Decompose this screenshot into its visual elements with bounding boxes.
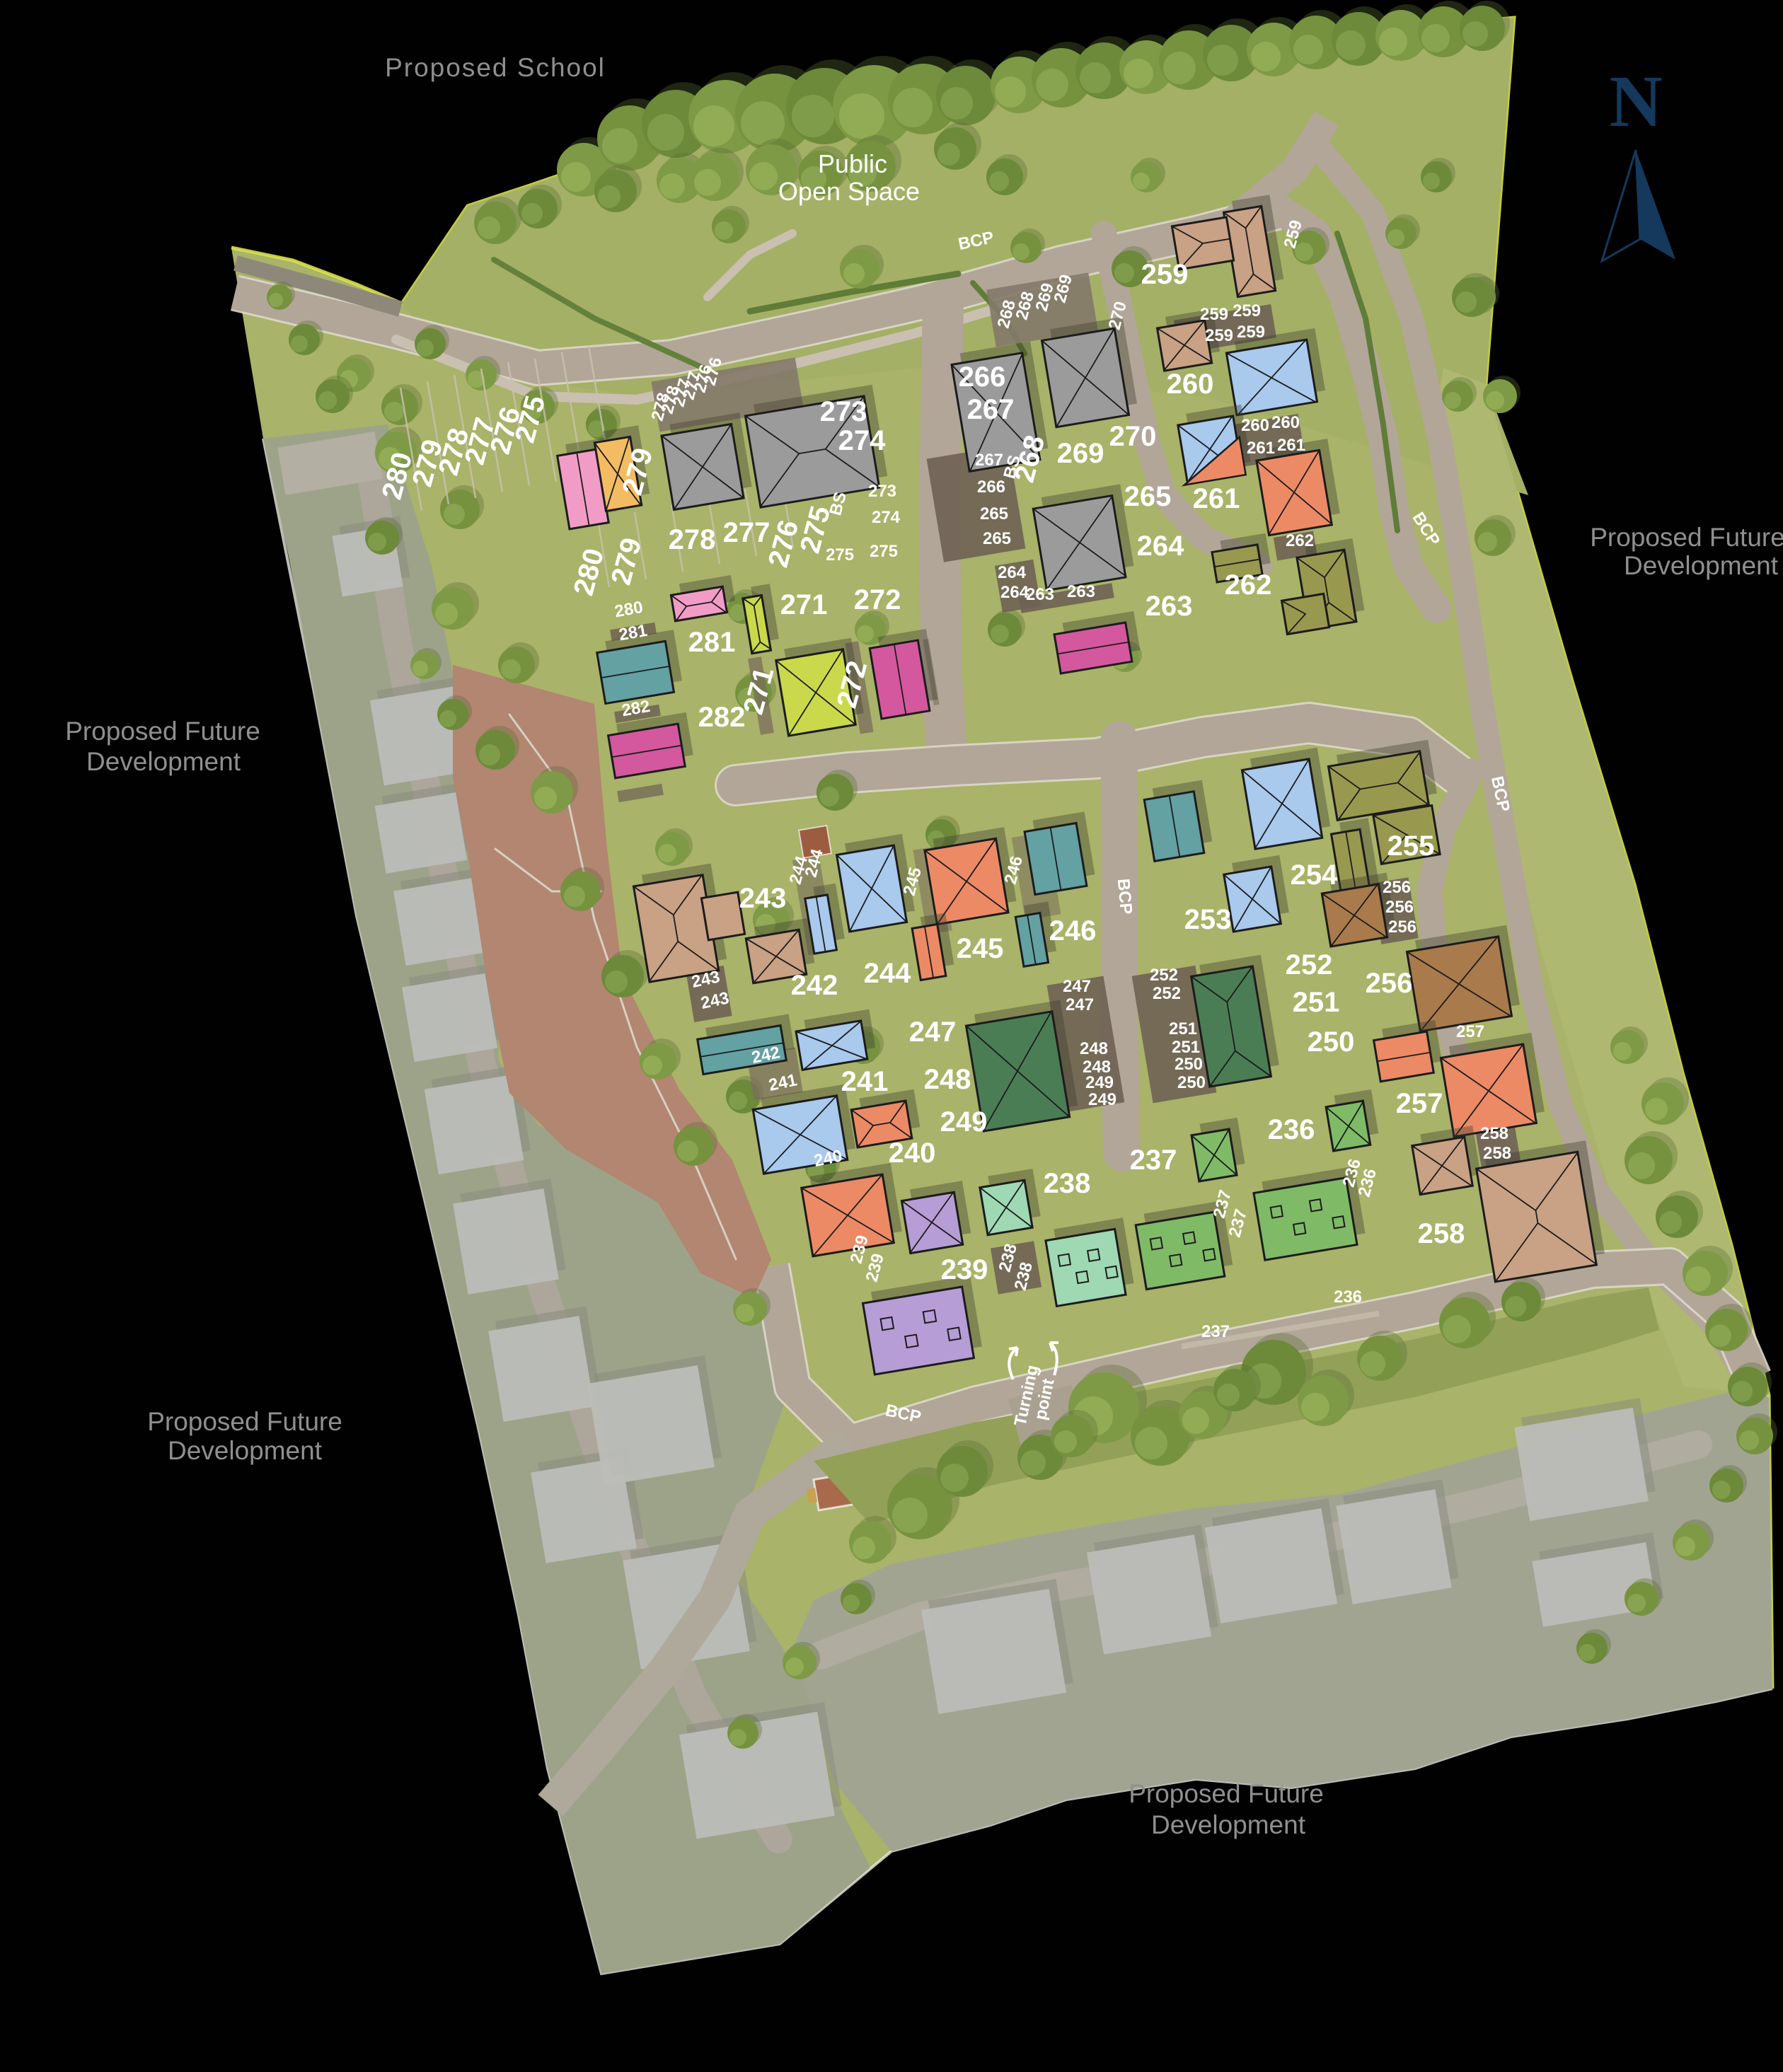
svg-text:248: 248 xyxy=(924,1064,971,1095)
svg-text:258: 258 xyxy=(1483,1144,1511,1163)
svg-text:261: 261 xyxy=(1193,483,1240,514)
svg-text:Proposed Future: Proposed Future xyxy=(1129,1779,1324,1808)
svg-text:259: 259 xyxy=(1233,301,1261,320)
svg-text:239: 239 xyxy=(941,1254,988,1285)
svg-text:255: 255 xyxy=(1387,830,1435,862)
svg-text:265: 265 xyxy=(980,504,1008,523)
svg-text:259: 259 xyxy=(1237,323,1265,342)
svg-text:256: 256 xyxy=(1383,878,1411,897)
svg-text:258: 258 xyxy=(1418,1218,1465,1249)
svg-text:267: 267 xyxy=(967,394,1015,425)
svg-text:236: 236 xyxy=(1334,1287,1362,1307)
svg-text:253: 253 xyxy=(1184,904,1232,935)
svg-text:237: 237 xyxy=(1201,1322,1230,1341)
svg-text:267: 267 xyxy=(975,451,1003,470)
svg-text:275: 275 xyxy=(826,545,854,565)
svg-text:256: 256 xyxy=(1366,968,1413,999)
svg-text:244: 244 xyxy=(864,958,911,989)
svg-text:238: 238 xyxy=(1044,1168,1091,1199)
svg-text:247: 247 xyxy=(1063,977,1091,996)
svg-text:250: 250 xyxy=(1175,1055,1203,1074)
svg-text:257: 257 xyxy=(1396,1088,1443,1119)
svg-text:256: 256 xyxy=(1388,918,1416,937)
svg-text:250: 250 xyxy=(1177,1073,1206,1092)
svg-text:269: 269 xyxy=(1057,438,1104,469)
svg-text:Proposed Future: Proposed Future xyxy=(1590,523,1783,552)
svg-text:263: 263 xyxy=(1146,591,1193,622)
svg-text:277: 277 xyxy=(723,517,771,548)
svg-text:260: 260 xyxy=(1241,416,1269,435)
svg-text:236: 236 xyxy=(1268,1114,1315,1145)
svg-text:264: 264 xyxy=(1137,531,1184,562)
svg-text:264: 264 xyxy=(998,563,1027,582)
svg-text:261: 261 xyxy=(1277,436,1305,455)
svg-text:266: 266 xyxy=(977,478,1005,497)
svg-text:251: 251 xyxy=(1293,987,1340,1018)
svg-text:Development: Development xyxy=(1624,551,1779,580)
svg-text:260: 260 xyxy=(1271,413,1300,432)
svg-text:265: 265 xyxy=(983,529,1011,548)
svg-text:247: 247 xyxy=(1066,995,1094,1014)
svg-text:259: 259 xyxy=(1205,326,1233,345)
svg-text:278: 278 xyxy=(669,524,716,555)
svg-text:259: 259 xyxy=(1200,305,1228,324)
svg-text:258: 258 xyxy=(1480,1124,1508,1143)
svg-text:243: 243 xyxy=(739,883,787,914)
svg-text:281: 281 xyxy=(688,627,736,658)
svg-text:260: 260 xyxy=(1167,369,1214,400)
svg-text:273: 273 xyxy=(820,396,867,427)
svg-text:247: 247 xyxy=(909,1017,957,1048)
svg-text:266: 266 xyxy=(959,361,1006,393)
svg-text:261: 261 xyxy=(1247,439,1275,458)
svg-text:270: 270 xyxy=(1109,421,1157,452)
svg-text:246: 246 xyxy=(1049,915,1097,947)
svg-text:257: 257 xyxy=(1456,1022,1484,1041)
svg-text:248: 248 xyxy=(1080,1039,1108,1058)
svg-text:240: 240 xyxy=(889,1138,936,1169)
svg-text:Public: Public xyxy=(818,149,887,178)
svg-text:252: 252 xyxy=(1153,984,1181,1003)
svg-text:Proposed Future: Proposed Future xyxy=(65,717,260,746)
svg-text:262: 262 xyxy=(1225,569,1272,601)
svg-text:Open Space: Open Space xyxy=(778,177,920,206)
svg-text:249: 249 xyxy=(1085,1073,1114,1092)
svg-text:252: 252 xyxy=(1286,949,1333,980)
svg-text:251: 251 xyxy=(1169,1019,1197,1038)
svg-text:271: 271 xyxy=(780,589,828,620)
svg-text:Development: Development xyxy=(86,747,241,776)
svg-text:237: 237 xyxy=(1130,1145,1177,1176)
svg-text:249: 249 xyxy=(940,1106,988,1138)
svg-text:264: 264 xyxy=(1000,583,1029,602)
svg-text:N: N xyxy=(1609,61,1662,142)
svg-text:249: 249 xyxy=(1088,1090,1116,1109)
svg-text:Proposed School: Proposed School xyxy=(385,53,606,82)
svg-text:274: 274 xyxy=(872,508,901,527)
svg-text:273: 273 xyxy=(868,482,896,501)
svg-text:252: 252 xyxy=(1150,966,1178,985)
svg-text:275: 275 xyxy=(870,542,898,561)
svg-text:241: 241 xyxy=(841,1066,889,1097)
svg-text:262: 262 xyxy=(1286,531,1314,550)
svg-text:Development: Development xyxy=(1151,1810,1306,1839)
svg-text:Development: Development xyxy=(168,1436,323,1465)
svg-text:263: 263 xyxy=(1067,582,1095,601)
svg-text:242: 242 xyxy=(791,970,838,1001)
svg-text:254: 254 xyxy=(1291,860,1338,891)
svg-text:259: 259 xyxy=(1141,259,1189,290)
svg-text:250: 250 xyxy=(1308,1026,1355,1058)
svg-text:274: 274 xyxy=(838,425,886,456)
svg-text:263: 263 xyxy=(1026,585,1054,604)
svg-text:BCP: BCP xyxy=(1114,878,1136,915)
svg-text:Proposed Future: Proposed Future xyxy=(147,1407,342,1436)
svg-text:265: 265 xyxy=(1124,481,1172,512)
svg-text:245: 245 xyxy=(957,933,1004,964)
svg-text:256: 256 xyxy=(1385,898,1414,917)
svg-text:251: 251 xyxy=(1172,1038,1200,1057)
svg-text:272: 272 xyxy=(854,584,901,615)
